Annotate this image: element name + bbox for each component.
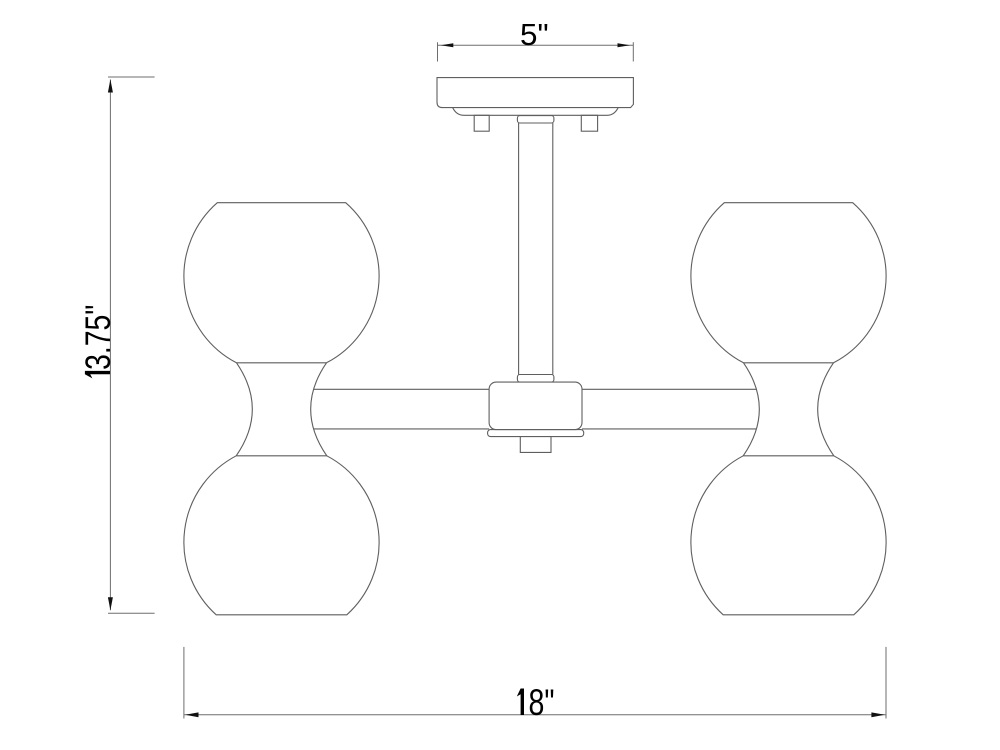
svg-text:5": 5" xyxy=(520,17,549,52)
svg-text:8": 8" xyxy=(529,682,555,723)
svg-text:3.75": 3.75" xyxy=(79,305,118,370)
